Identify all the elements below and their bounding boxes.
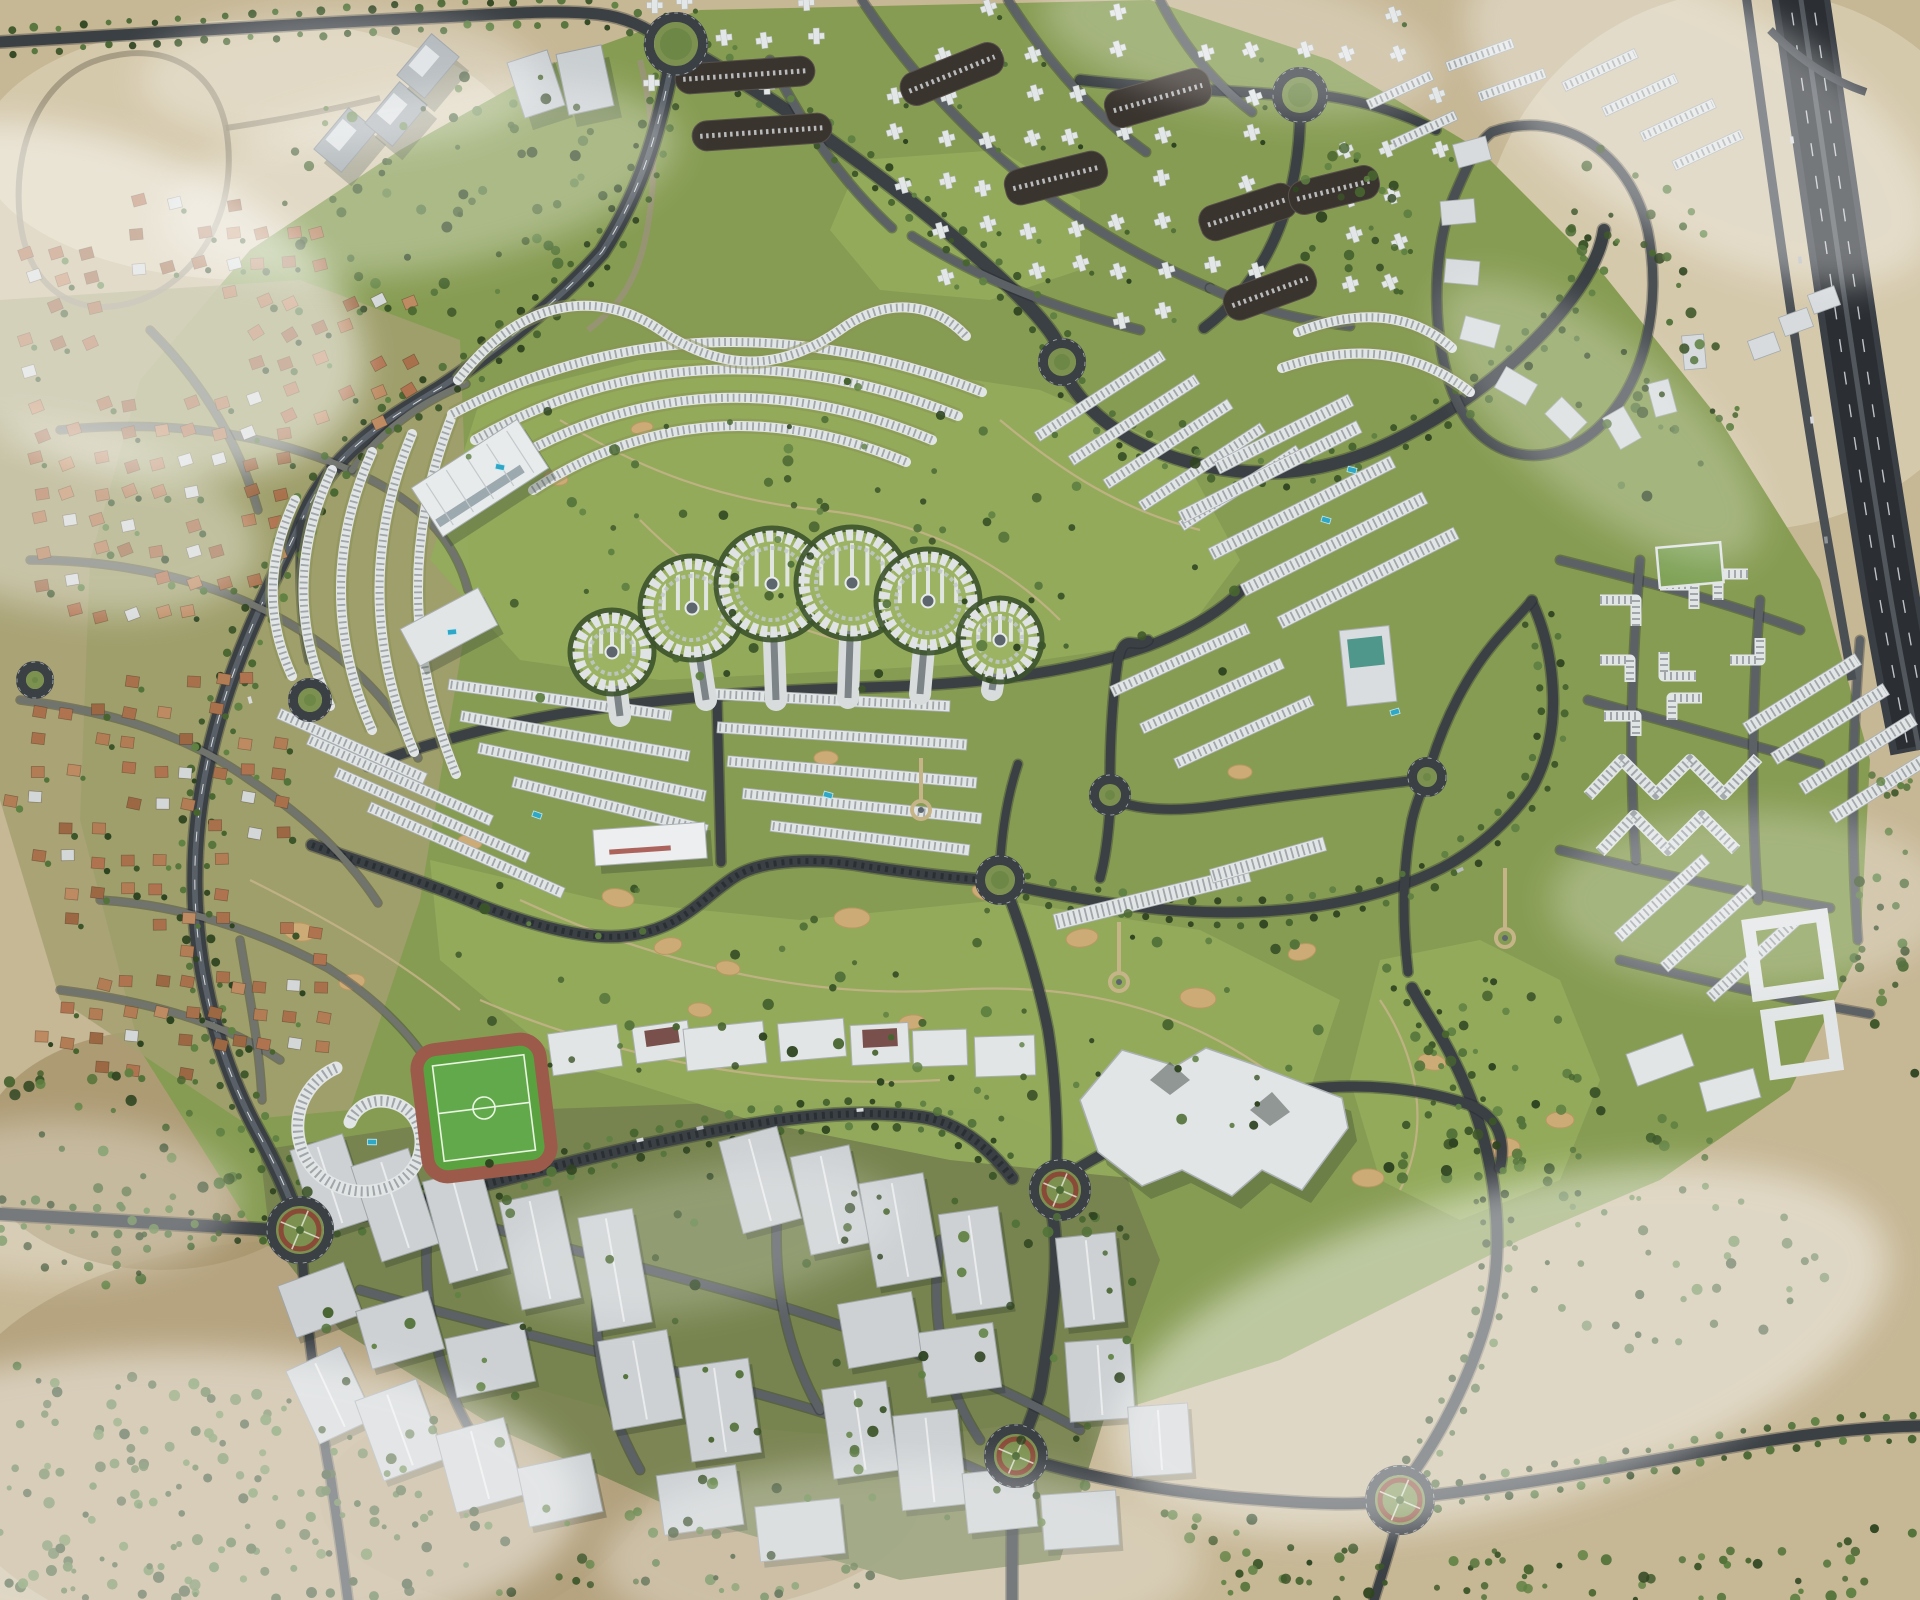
sports-field [415, 1037, 554, 1179]
aerial-masterplan-svg [0, 0, 1920, 1600]
aerial-masterplan-screenshot [0, 0, 1920, 1600]
